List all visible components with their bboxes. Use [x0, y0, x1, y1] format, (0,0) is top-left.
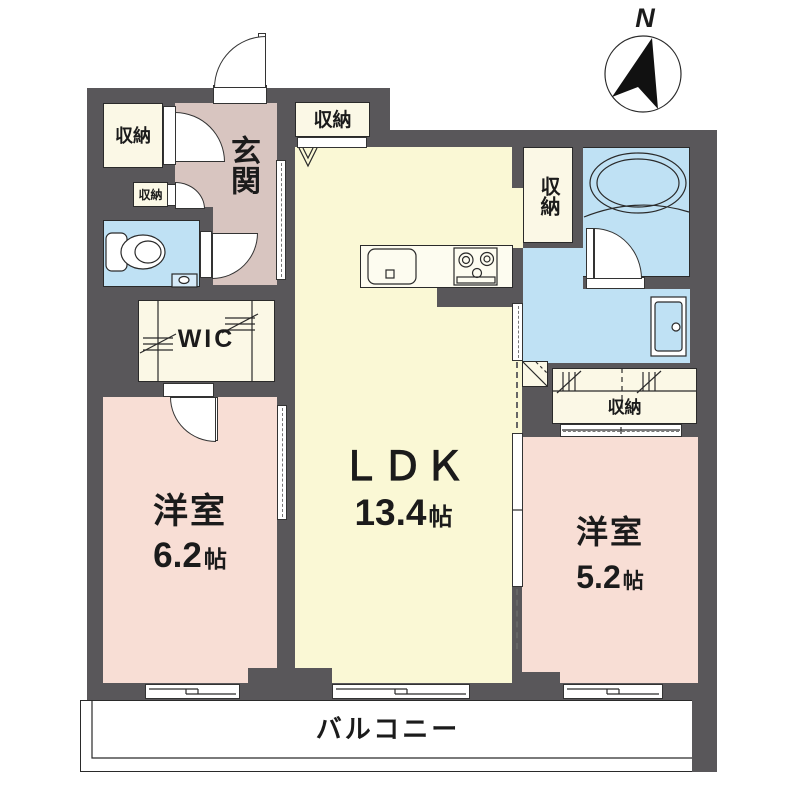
wic-label: WIC [138, 324, 275, 354]
ldk-size-label: 13.4帖 [295, 494, 512, 536]
washroom-upper [523, 248, 583, 363]
door-leaf-bathroom [586, 228, 594, 279]
closet-ldk-top-door [297, 137, 367, 148]
ldk-room-ext1 [512, 188, 523, 248]
bedroom-right-size-label: 5.2帖 [522, 561, 698, 599]
kitchen-counter [360, 245, 513, 288]
ldk-label: ＬＤＫ [295, 443, 512, 491]
opening-dashed-lower [516, 589, 518, 649]
window-bedroom-right [563, 684, 663, 699]
window-ldk [332, 684, 470, 699]
door-arc-entry [214, 36, 266, 88]
pipe-space [522, 361, 548, 387]
opening-dashed-upper [516, 362, 518, 428]
wic-door-opening [163, 383, 214, 397]
toilet-room [103, 220, 200, 287]
bedroom-right-label: 洋室 [522, 511, 698, 553]
washroom-lower [583, 289, 690, 363]
floor-plan: 収納 収納 収納 収納 収納 玄関 WIC ＬＤＫ 13.4帖 洋室 6.2帖 … [0, 0, 800, 800]
closet-hall-large-label: 収納 [103, 124, 163, 148]
closet-bath-side-label: 収納 [534, 157, 562, 235]
toilet-door-opening [200, 231, 212, 278]
entrance-label: 玄関 [224, 124, 260, 206]
kitchen-return-wall [437, 288, 512, 307]
balcony-label: バルコニー [80, 714, 696, 744]
closet-ldk-top-label: 収納 [295, 108, 370, 132]
pillar-bottom-right [512, 672, 560, 700]
bedroom-left-size-label: 6.2帖 [103, 538, 277, 578]
ldk-bedroomleft-sliding-door [277, 405, 287, 520]
ldk-room [295, 147, 512, 683]
ldk-washroom-sliding-door [512, 303, 523, 361]
closet-bedroom-right-label: 収納 [552, 396, 697, 418]
closet-bedroomright-door [560, 424, 682, 437]
compass-circle [605, 36, 681, 112]
bedroom-left-label: 洋室 [103, 489, 277, 533]
north-arrow-icon [612, 38, 658, 109]
pillar-bottom-left [248, 668, 332, 700]
closet-hall-small-label: 収納 [133, 185, 168, 204]
window-bedroom-left [145, 684, 240, 699]
entrance-ldk-sliding-door [276, 160, 286, 280]
north-label: N [627, 4, 663, 32]
